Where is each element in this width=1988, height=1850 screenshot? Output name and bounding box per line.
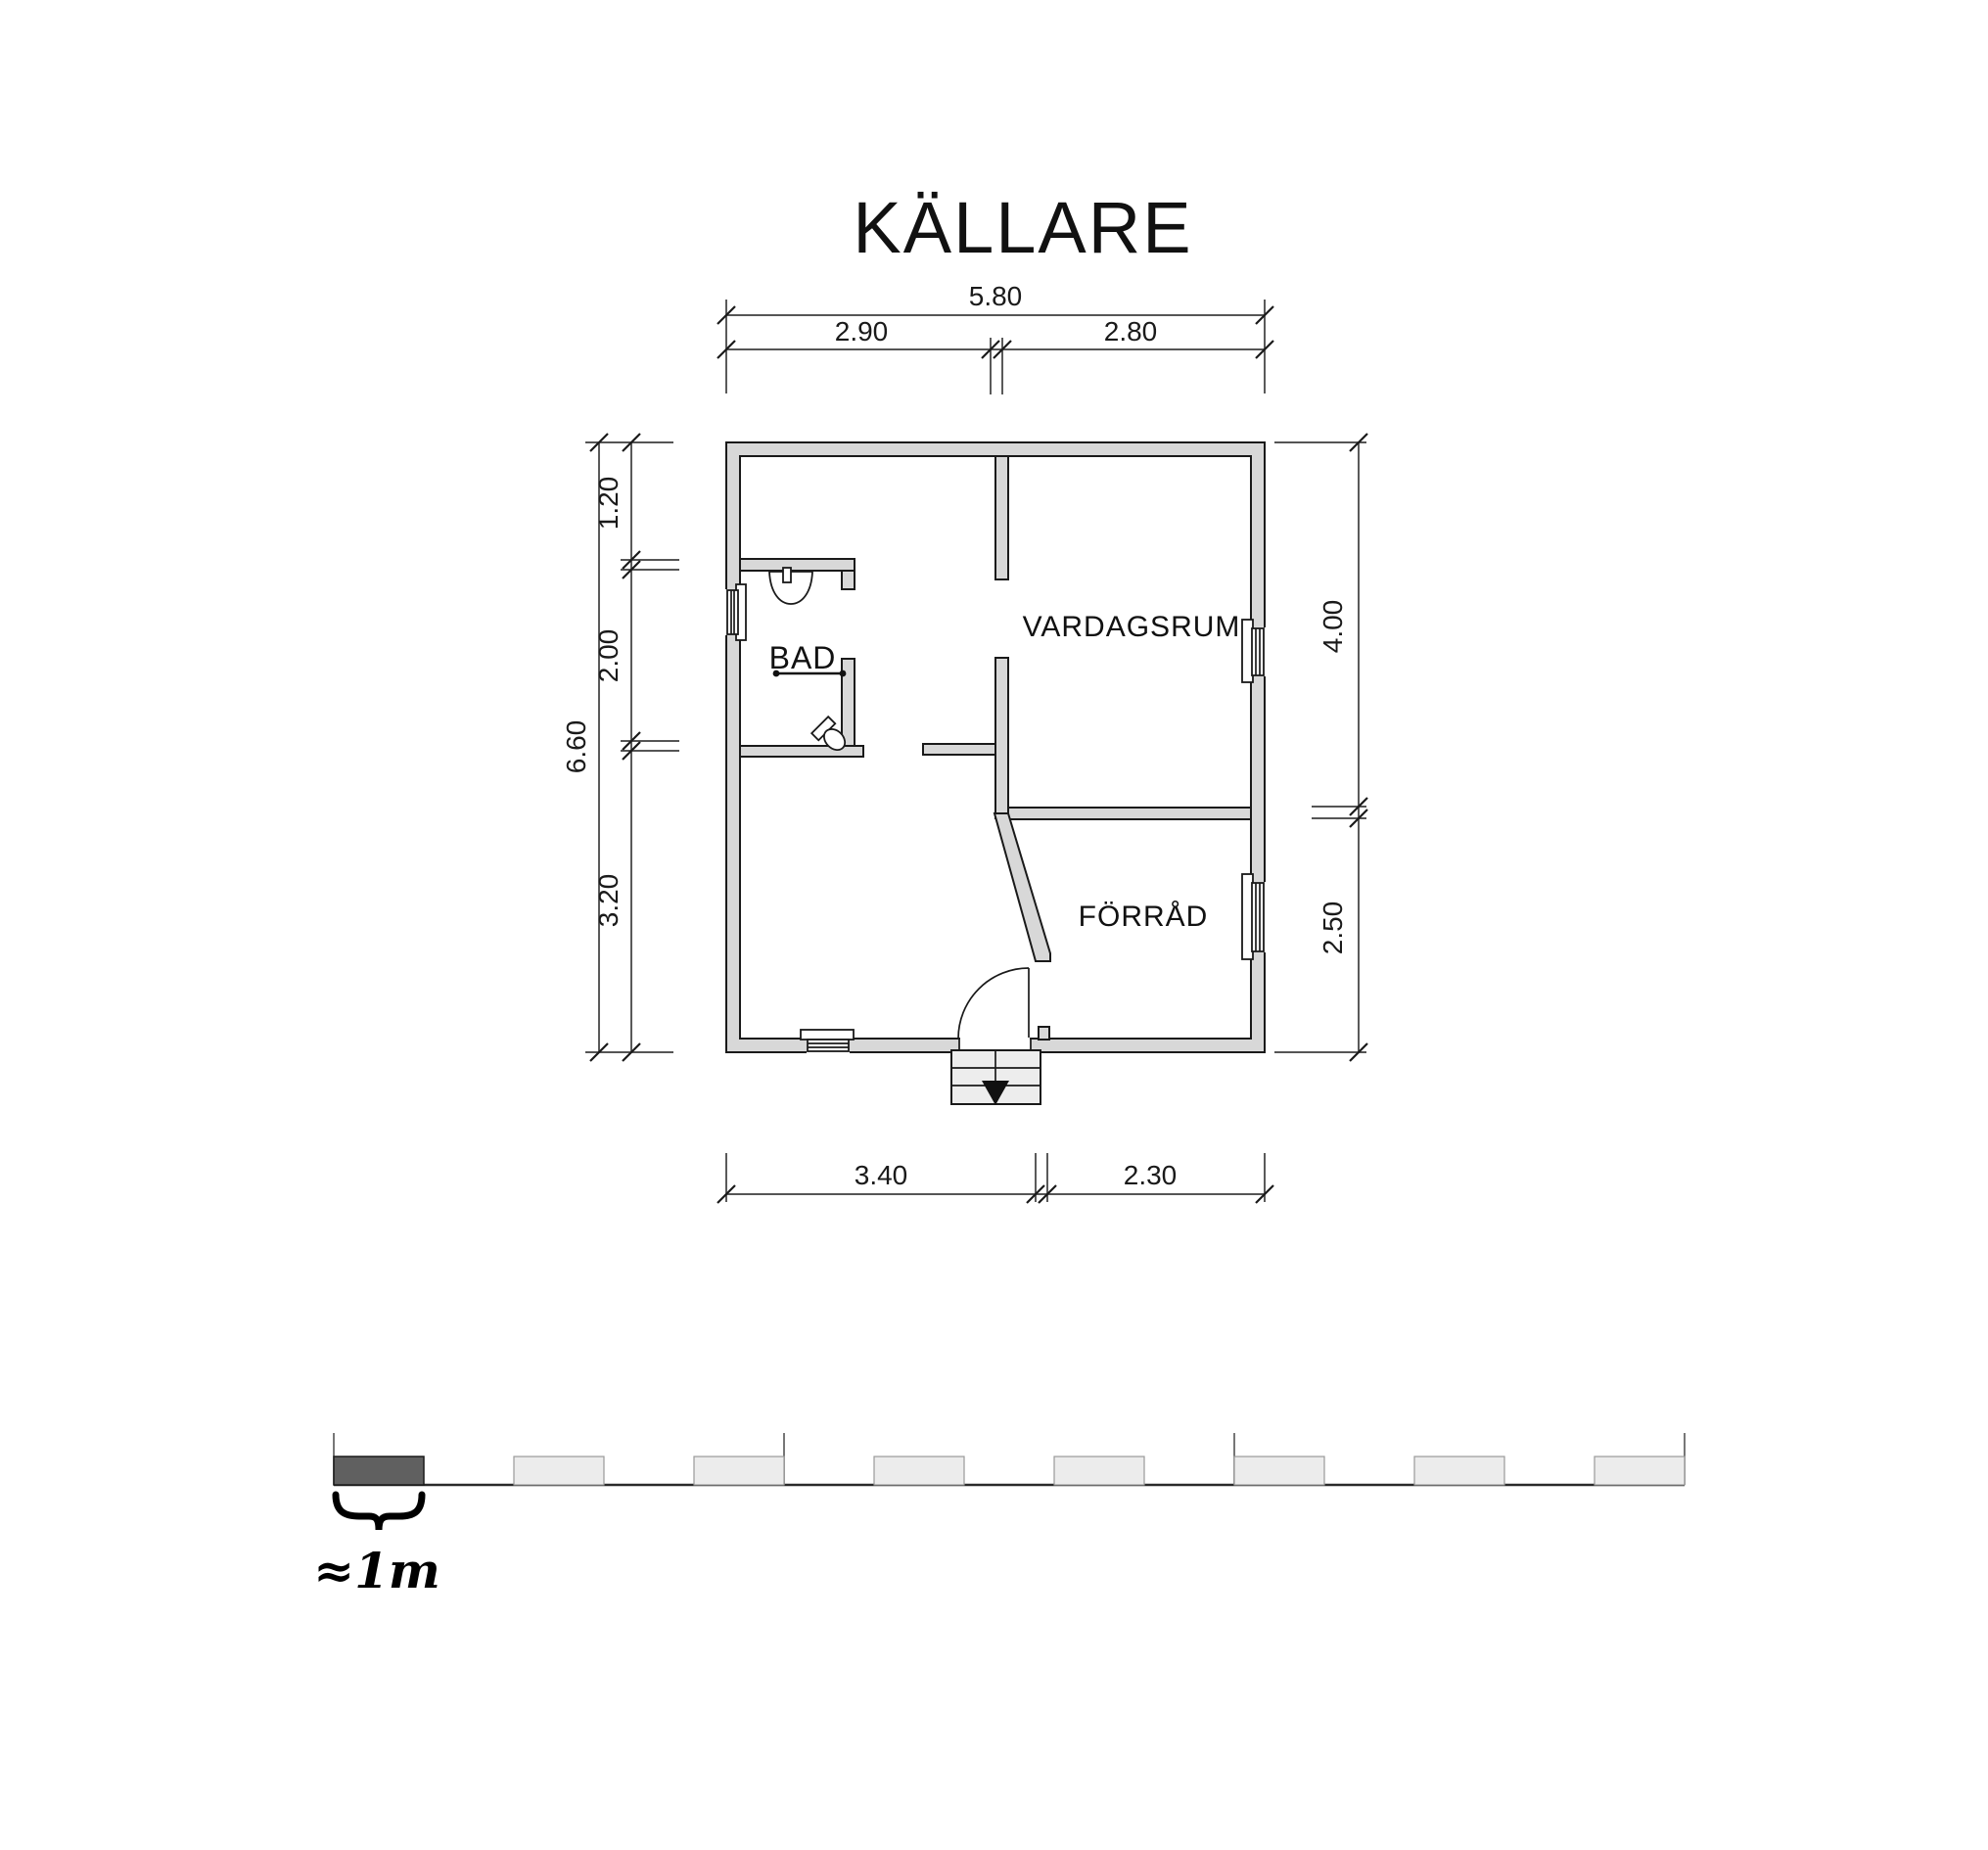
dim-right-segment-2: 2.50 bbox=[1318, 902, 1348, 955]
hall-stub-wall bbox=[923, 744, 995, 755]
dim-top-total: 5.80 bbox=[969, 281, 1023, 311]
door-stop-notch bbox=[1039, 1027, 1049, 1040]
livingroom-wall-upper bbox=[995, 456, 1008, 579]
dim-right-segment-1: 4.00 bbox=[1318, 600, 1348, 654]
room-label-bathroom: BAD bbox=[769, 640, 837, 675]
dim-left-segment-1: 1.20 bbox=[593, 477, 624, 531]
floorplan-page: KÄLLARE 5.80 2.90 2.80 bbox=[0, 0, 1988, 1850]
dimension-top: 5.80 2.90 2.80 bbox=[717, 281, 1273, 394]
scale-bar: ≈1m bbox=[313, 1433, 1685, 1599]
storage-diagonal-wall bbox=[994, 813, 1050, 961]
window-frame bbox=[727, 590, 738, 634]
bath-door-jamb bbox=[842, 571, 855, 589]
room-label-storage: FÖRRÅD bbox=[1079, 901, 1209, 933]
window-frame bbox=[1252, 883, 1264, 951]
window-storage bbox=[1242, 874, 1266, 959]
scale-bar-dark-segment bbox=[334, 1457, 424, 1485]
stairs bbox=[951, 1050, 1040, 1105]
window-livingroom bbox=[1242, 620, 1266, 682]
bath-top-wall bbox=[740, 559, 855, 571]
window-frame bbox=[1252, 628, 1264, 675]
room-label-livingroom: VARDAGSRUM bbox=[1023, 611, 1241, 643]
window-left-wall bbox=[724, 584, 746, 640]
dimension-bottom: 3.40 2.30 bbox=[717, 1153, 1273, 1203]
scale-label: ≈1m bbox=[313, 1542, 440, 1599]
dimension-left: 6.60 1.20 2.00 3.20 bbox=[561, 434, 679, 1061]
window-sill bbox=[801, 1030, 854, 1040]
page-title: KÄLLARE bbox=[853, 187, 1192, 268]
scale-brace bbox=[336, 1495, 422, 1530]
dim-left-segment-2: 2.00 bbox=[593, 629, 624, 683]
window-frame bbox=[808, 1040, 849, 1051]
dim-left-total: 6.60 bbox=[561, 720, 591, 774]
dim-top-segment-1: 2.90 bbox=[835, 316, 889, 347]
livingroom-wall-lower bbox=[995, 658, 1008, 818]
sink-tap bbox=[783, 568, 791, 582]
dim-left-segment-3: 3.20 bbox=[593, 874, 624, 928]
bath-bottom-wall bbox=[740, 746, 863, 757]
door-swing-arc bbox=[958, 968, 1029, 1039]
dimension-right: 4.00 2.50 bbox=[1274, 434, 1367, 1061]
dim-bottom-segment-2: 2.30 bbox=[1124, 1160, 1178, 1190]
sink bbox=[769, 568, 812, 604]
interior-walls bbox=[740, 456, 1251, 961]
storage-divider-wall bbox=[1008, 808, 1251, 819]
dim-top-segment-2: 2.80 bbox=[1104, 316, 1158, 347]
dim-bottom-segment-1: 3.40 bbox=[855, 1160, 908, 1190]
window-bottom-wall bbox=[801, 1030, 854, 1053]
floorplan-drawing: KÄLLARE 5.80 2.90 2.80 bbox=[0, 0, 1988, 1850]
